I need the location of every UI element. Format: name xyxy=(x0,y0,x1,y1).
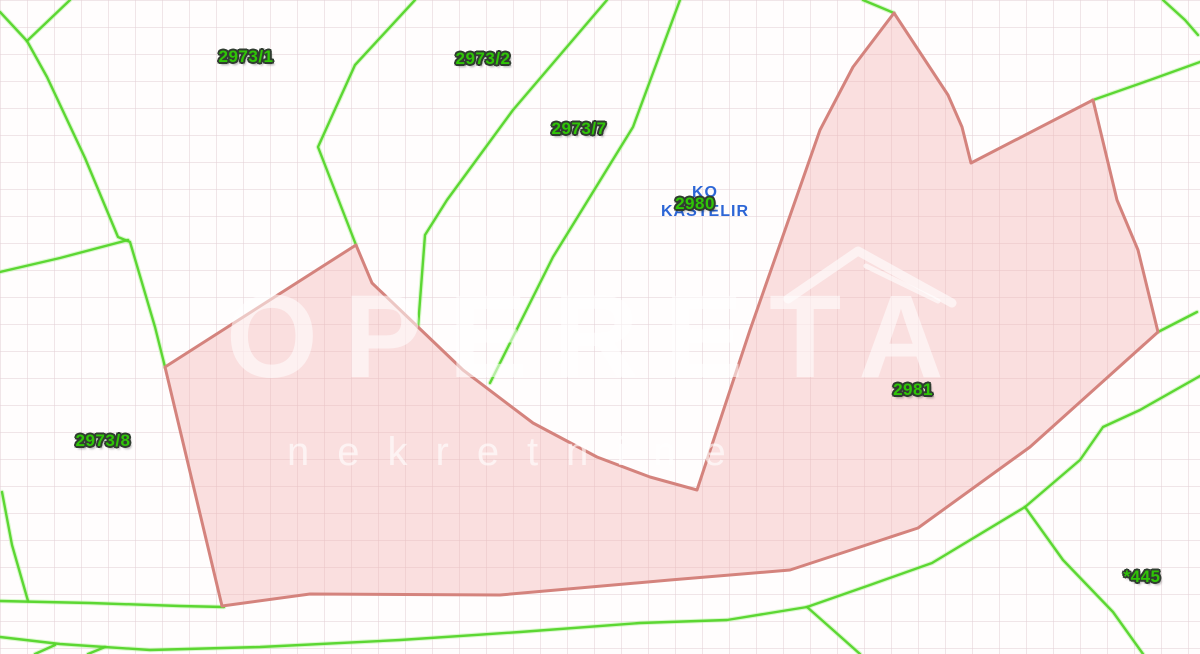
boundary-line xyxy=(1158,312,1197,332)
parcel-label-445: *445 xyxy=(1124,567,1161,587)
parcel-label-2973-7: 2973/7 xyxy=(552,119,607,139)
boundary-line-halo xyxy=(318,0,415,245)
boundary-line xyxy=(1163,0,1198,35)
boundary-line xyxy=(35,645,55,654)
parcel-label-2973-8: 2973/8 xyxy=(76,431,131,451)
boundary-line xyxy=(863,0,894,13)
boundary-line xyxy=(27,41,165,367)
boundary-line xyxy=(318,0,415,245)
boundary-line xyxy=(807,607,860,654)
boundary-line xyxy=(0,240,128,272)
watermark-brand-text: OPERETA xyxy=(226,278,970,396)
parcel-label-2980: 2980 xyxy=(675,194,715,214)
parcel-label-2973-1: 2973/1 xyxy=(219,47,274,67)
parcel-label-2973-2: 2973/2 xyxy=(456,49,511,69)
boundary-line xyxy=(1093,62,1200,100)
watermark-subtitle-text: nekretnine xyxy=(287,430,754,474)
boundary-line-halo xyxy=(27,41,165,367)
parcel-label-2981: 2981 xyxy=(893,380,933,400)
cadastral-map-canvas[interactable]: OPERETA nekretnine KO KAŠTELIR 2973/1297… xyxy=(0,0,1200,654)
boundary-line xyxy=(2,492,28,601)
